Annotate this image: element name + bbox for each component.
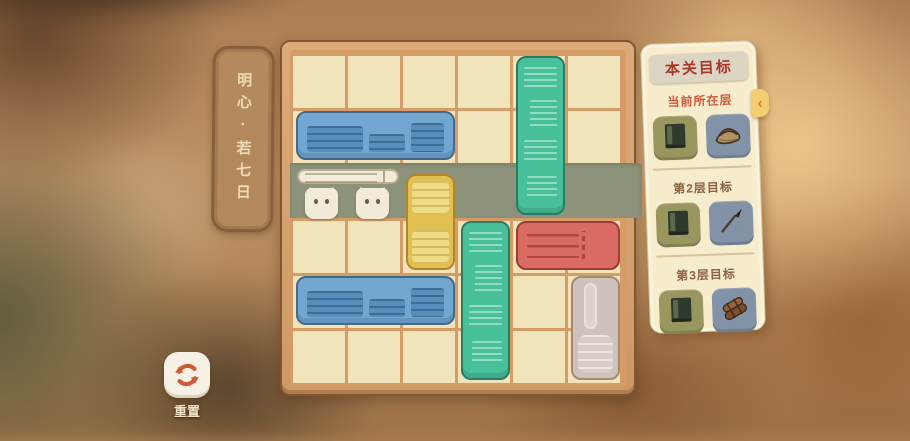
reset-label: 重置 xyxy=(161,401,213,420)
blue-bookshelf-bottom-block[interactable] xyxy=(296,276,455,325)
green-bookstack-top-block[interactable] xyxy=(516,56,565,215)
goals-panel-header: 本关目标 xyxy=(649,51,748,84)
straw-hat-icon xyxy=(712,118,743,154)
reset-button[interactable]: 重置 xyxy=(161,352,213,420)
book-icon xyxy=(662,207,693,243)
goal-tile xyxy=(658,289,704,335)
level-name-plaque: 明心·若七日 xyxy=(211,46,275,233)
brush-icon xyxy=(715,205,746,241)
refresh-icon xyxy=(172,360,202,390)
yellow-crate-block[interactable] xyxy=(406,174,455,270)
goals-panel: 本关目标 当前所在层第2层目标第3层目标 ‹ xyxy=(640,40,766,334)
white-chest-block[interactable] xyxy=(571,276,620,380)
goal-tiles-row xyxy=(658,287,757,334)
goal-section: 第2层目标 xyxy=(653,165,754,247)
goal-section-label: 当前所在层 xyxy=(651,90,750,110)
puzzle-board xyxy=(280,40,636,396)
goal-section-label: 第3层目标 xyxy=(657,264,756,284)
chevron-left-icon: ‹ xyxy=(757,94,763,111)
cat-icon xyxy=(305,188,338,219)
goal-tile xyxy=(705,113,751,159)
goal-tile xyxy=(652,115,698,161)
goal-section: 第3层目标 xyxy=(656,252,757,334)
scroll-icon xyxy=(718,292,749,328)
goal-tiles-row xyxy=(652,113,751,160)
goal-tile xyxy=(708,200,754,246)
goal-section-label: 第2层目标 xyxy=(654,177,753,197)
book-icon xyxy=(665,294,696,330)
cat-icon xyxy=(356,188,389,219)
blue-bookshelf-top-block[interactable] xyxy=(296,111,455,160)
panel-collapse-tab[interactable]: ‹ xyxy=(751,89,770,118)
goal-tile xyxy=(711,287,757,333)
book-icon xyxy=(659,120,690,156)
goal-section: 当前所在层 xyxy=(650,80,751,160)
goals-panel-title: 本关目标 xyxy=(665,59,734,79)
board-field xyxy=(290,50,626,386)
goal-tiles-row xyxy=(655,200,754,247)
red-book-block[interactable] xyxy=(516,221,620,270)
goal-tile xyxy=(655,202,701,248)
green-bookstack-bottom-block[interactable] xyxy=(461,221,510,380)
level-name-text: 明心·若七日 xyxy=(232,72,254,206)
cats-carrying-scroll-block[interactable] xyxy=(296,166,400,215)
goals-sections: 当前所在层第2层目标第3层目标 xyxy=(642,80,765,335)
reset-icon-pad[interactable] xyxy=(164,352,210,398)
